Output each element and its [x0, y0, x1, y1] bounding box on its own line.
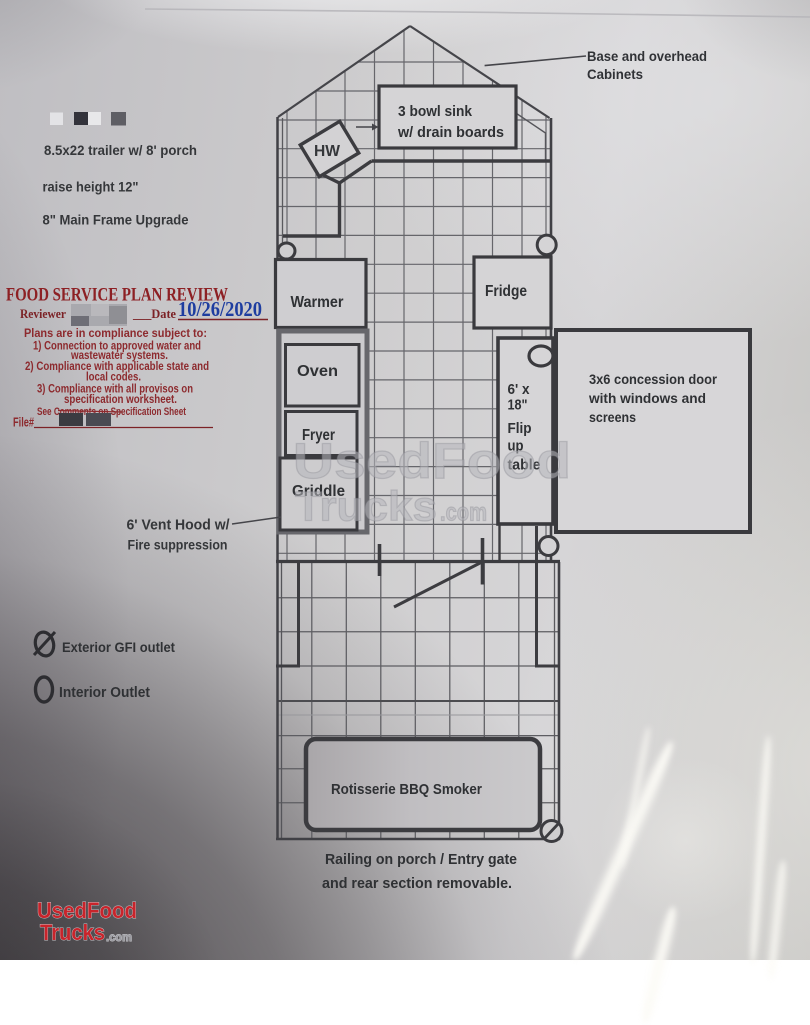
svg-text:.com: .com [106, 932, 132, 944]
svg-text:Oven: Oven [297, 363, 338, 380]
svg-text:File#: File# [13, 415, 35, 430]
svg-text:Trucks: Trucks [295, 483, 437, 530]
svg-text:UsedFood: UsedFood [293, 433, 571, 489]
svg-text:specification worksheet.: specification worksheet. [64, 392, 177, 406]
svg-text:3x6 concession door: 3x6 concession door [589, 372, 717, 388]
svg-text:6' x: 6' x [508, 381, 531, 398]
svg-text:Base and overhead: Base and overhead [587, 48, 707, 64]
svg-text:18": 18" [508, 397, 528, 414]
svg-text:10/26/2020: 10/26/2020 [178, 297, 262, 321]
svg-text:8.5x22 trailer w/ 8' porch: 8.5x22 trailer w/ 8' porch [44, 142, 197, 158]
svg-text:Fire suppression: Fire suppression [128, 537, 228, 553]
svg-text:8" Main Frame Upgrade: 8" Main Frame Upgrade [43, 212, 189, 228]
svg-text:.com: .com [440, 499, 487, 527]
svg-text:Exterior GFI outlet: Exterior GFI outlet [62, 640, 175, 656]
svg-text:Warmer: Warmer [291, 294, 344, 311]
svg-text:6' Vent Hood w/: 6' Vent Hood w/ [127, 518, 230, 534]
svg-text:Reviewer: Reviewer [20, 306, 66, 321]
svg-text:with windows and: with windows and [588, 391, 706, 407]
svg-text:HW: HW [314, 143, 340, 160]
svg-text:Cabinets: Cabinets [587, 66, 643, 82]
svg-text:and rear section removable.: and rear section removable. [322, 875, 512, 892]
svg-text:Trucks: Trucks [40, 920, 105, 945]
svg-text:Interior Outlet: Interior Outlet [59, 685, 150, 701]
svg-text:screens: screens [589, 410, 636, 426]
svg-text:___Date: ___Date [132, 306, 176, 321]
svg-text:raise height 12": raise height 12" [43, 179, 139, 195]
svg-text:3 bowl sink: 3 bowl sink [398, 103, 473, 120]
svg-text:w/ drain boards: w/ drain boards [397, 124, 504, 141]
svg-text:Rotisserie BBQ Smoker: Rotisserie BBQ Smoker [331, 782, 482, 798]
svg-text:Fridge: Fridge [485, 283, 527, 300]
svg-text:Railing on porch / Entry gate: Railing on porch / Entry gate [325, 851, 517, 868]
